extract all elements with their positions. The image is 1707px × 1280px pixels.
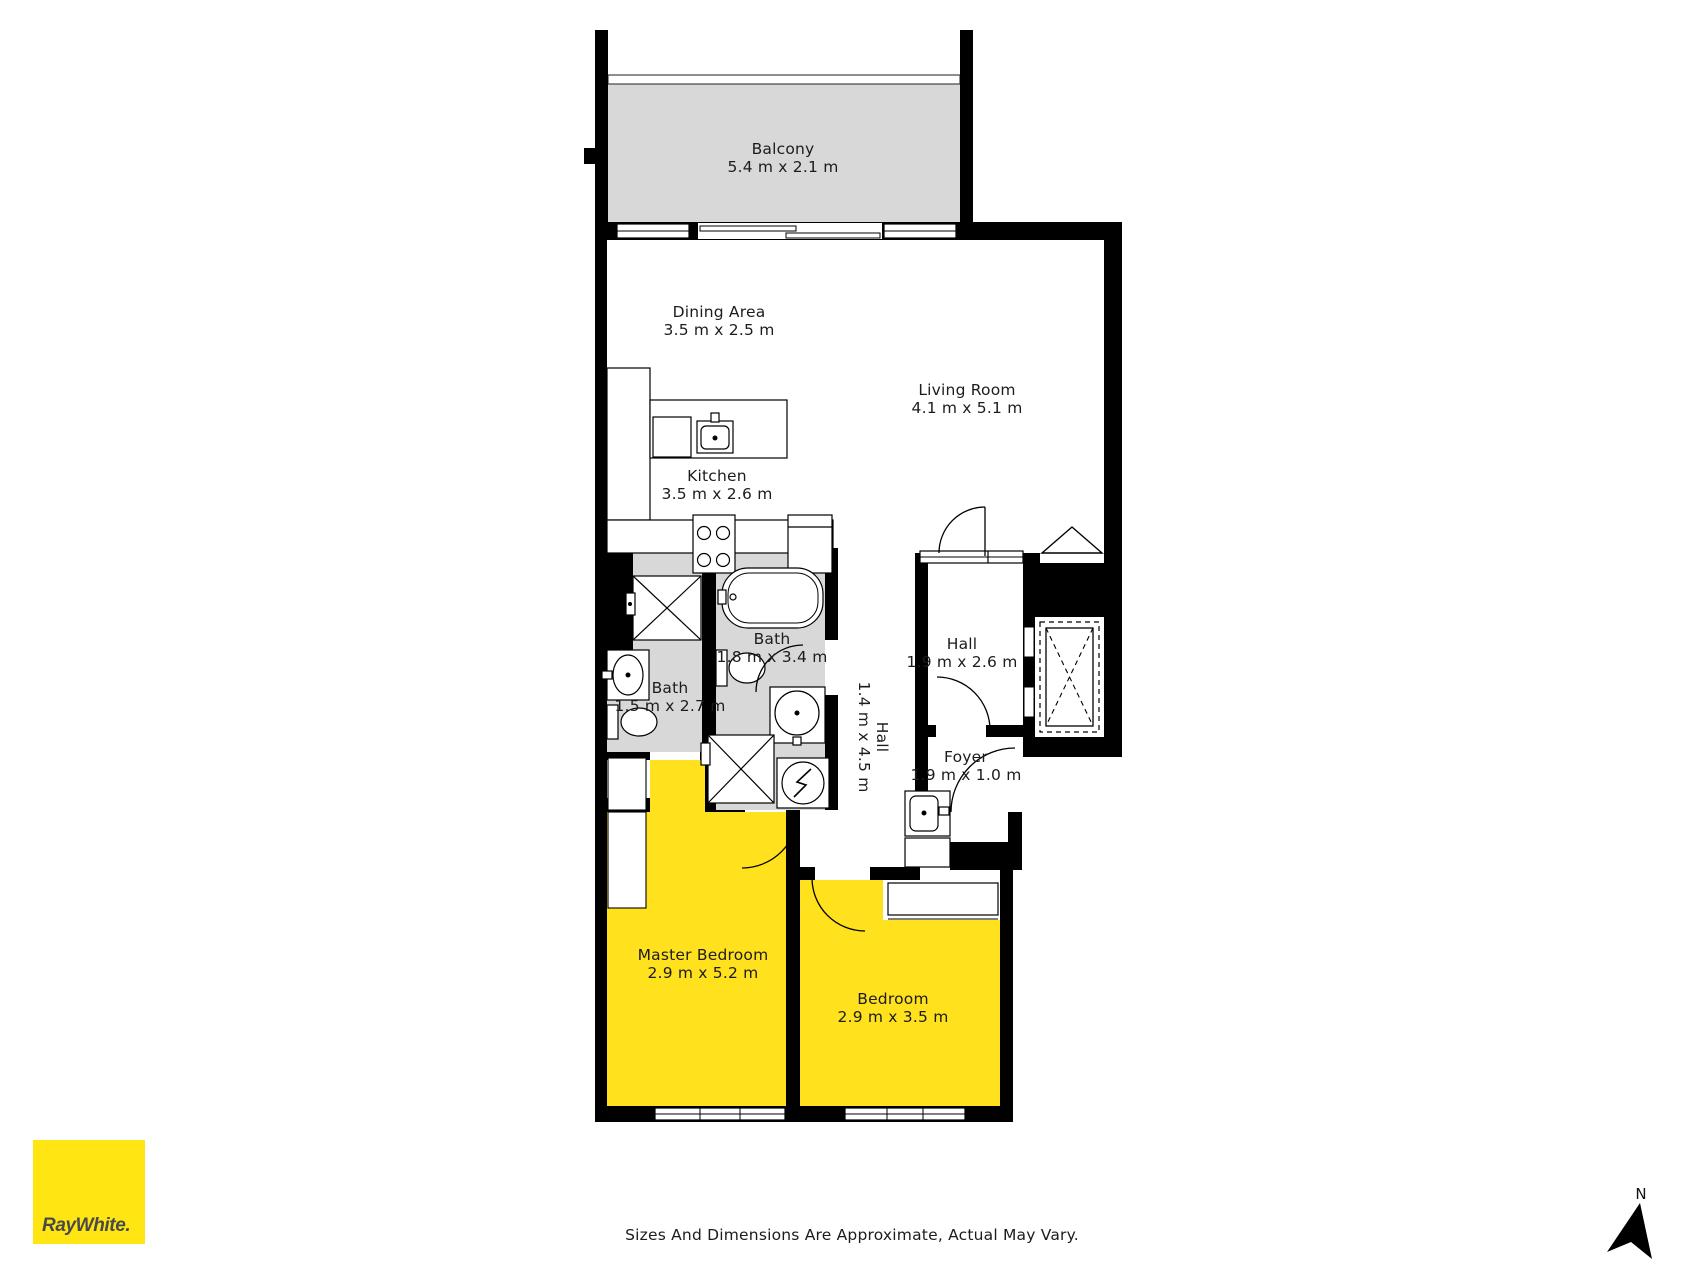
hall-label: Hall 1.9 m x 2.6 m — [907, 635, 1018, 671]
elevator — [1024, 617, 1104, 737]
floorplan-drawing — [0, 0, 1707, 1280]
hall-foyer-wall-stub — [928, 725, 936, 737]
kitchen-counter-left — [607, 368, 650, 520]
master-closet-lower — [608, 812, 646, 908]
bedroom-top-wall-left — [800, 867, 815, 880]
elevator-bottom-wall-chunk — [1023, 737, 1122, 757]
stove-burner — [717, 554, 730, 567]
washing-machine-drum — [782, 762, 824, 804]
master-bedroom-ensuite-nook — [650, 760, 705, 816]
corridor-hall-wall — [915, 553, 928, 830]
foyer-label: Foyer 1.9 m x 1.0 m — [911, 748, 1022, 784]
stove-burner — [698, 527, 711, 540]
main-bath-label: Bath 1.8 m x 3.4 m — [717, 630, 828, 666]
hall-foyer-door — [937, 677, 990, 730]
corridor-label: Hall 1.4 m x 4.5 m — [855, 682, 891, 793]
kitchen-faucet — [711, 413, 719, 422]
master-closet-upper — [608, 758, 646, 810]
foyer-fixtures — [905, 791, 950, 867]
elevator-door — [1024, 627, 1034, 657]
below-foyer-wall-chunk — [950, 842, 1022, 870]
kitchen-cabinet — [653, 417, 691, 457]
shower-head-fixture — [701, 743, 710, 765]
bathtub-faucet — [718, 590, 726, 604]
foyer-cabinet — [905, 838, 950, 867]
balcony-label: Balcony 5.4 m x 2.1 m — [728, 140, 839, 176]
kitchen-label: Kitchen 3.5 m x 2.6 m — [662, 467, 773, 503]
fridge — [788, 515, 832, 573]
laundry-faucet — [939, 807, 949, 815]
balcony-railing — [608, 75, 960, 84]
north-label: N — [1635, 1185, 1646, 1203]
right-exterior-wall — [1104, 222, 1122, 757]
stove-burner — [698, 554, 711, 567]
balcony-stub-wall-left — [595, 30, 608, 222]
ensuite-bath-label: Bath 1.5 m x 2.7 m — [615, 679, 726, 715]
disclaimer-text: Sizes And Dimensions Are Approximate, Ac… — [625, 1226, 1079, 1244]
bedroom-right-wall — [1000, 867, 1013, 1122]
balcony-stub-wall-right — [960, 30, 973, 222]
living-label: Living Room 4.1 m x 5.1 m — [912, 381, 1023, 417]
hall-foyer-wall — [986, 725, 1023, 737]
raywhite-logo: RayWhite. — [33, 1140, 145, 1244]
bedroom-divider-wall — [786, 798, 800, 1122]
bedroom-label: Bedroom 2.9 m x 3.5 m — [838, 990, 949, 1026]
bath-faucet — [793, 737, 801, 745]
ensuite-faucet — [602, 671, 612, 679]
living-hall-door — [939, 507, 985, 553]
elevator-door — [1024, 687, 1034, 717]
master-bedroom-label: Master Bedroom 2.9 m x 5.2 m — [638, 946, 769, 982]
bath-divider-wall — [700, 558, 716, 752]
balcony-wall-notch — [584, 148, 595, 164]
north-arrow-icon — [1607, 1203, 1652, 1259]
bedroom-top-wall-right — [870, 867, 920, 880]
opening-marker — [1042, 527, 1102, 553]
floorplan-page: Balcony 5.4 m x 2.1 m Dining Area 3.5 m … — [0, 0, 1707, 1280]
raywhite-logo-text: RayWhite. — [42, 1215, 130, 1237]
stove-burner — [717, 527, 730, 540]
dining-label: Dining Area 3.5 m x 2.5 m — [664, 303, 775, 339]
bedroom-wardrobe — [888, 883, 998, 915]
